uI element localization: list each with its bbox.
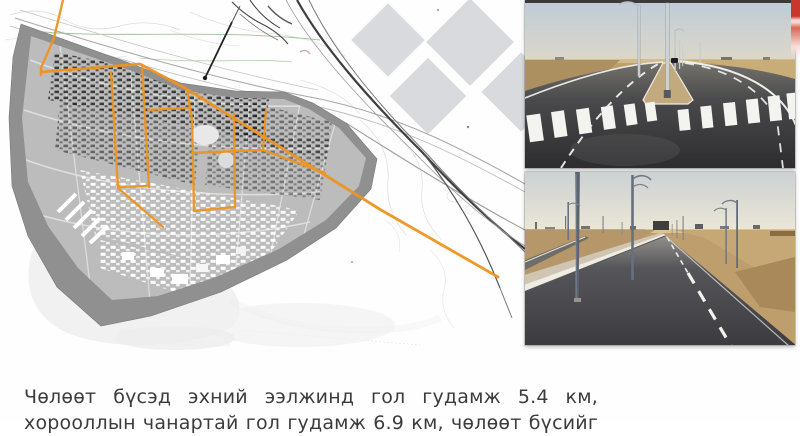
photo-bottom-scene xyxy=(525,172,795,345)
photo-top-edge xyxy=(525,0,795,4)
caption-line-2: хорооллын чанартай гол гудамж 6.9 км, чө… xyxy=(24,411,598,436)
caption-line-1: Чөлөөт бүсэд эхний ээлжинд гол гудамж 5.… xyxy=(24,385,598,411)
caption: Чөлөөт бүсэд эхний ээлжинд гол гудамж 5.… xyxy=(24,385,598,436)
master-plan-map xyxy=(0,0,525,362)
photo-top-scene xyxy=(525,0,795,168)
sky xyxy=(525,3,795,61)
diamond-decorations xyxy=(351,0,525,263)
road-photo-bottom xyxy=(525,172,795,345)
ribbon-accent xyxy=(791,0,800,58)
road-photo-top xyxy=(525,0,795,168)
slide-canvas: Чөлөөт бүсэд эхний ээлжинд гол гудамж 5.… xyxy=(0,0,800,420)
distant-car xyxy=(671,58,678,63)
